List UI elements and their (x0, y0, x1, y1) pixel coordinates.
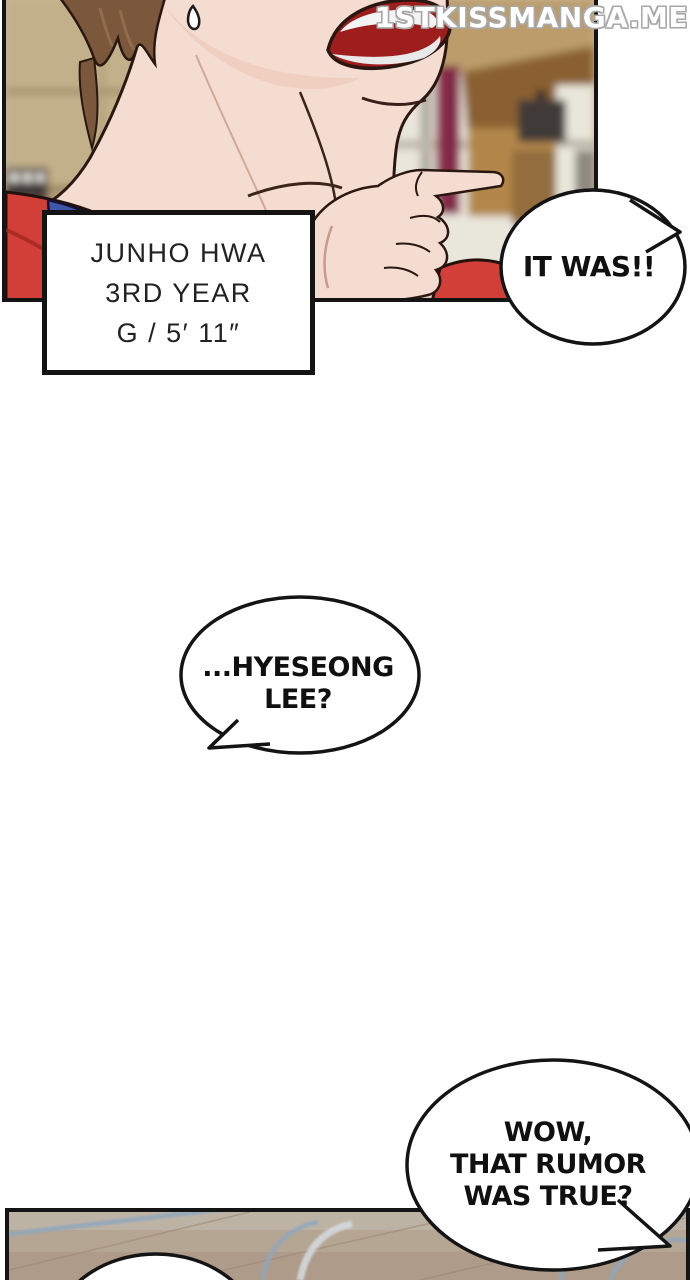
bubble-text-hyeseong-2: LEE? (264, 684, 332, 715)
bubble-text-rumor-3: WAS TRUE? (463, 1181, 632, 1212)
speech-bubble-hyeseong: ...HYESEONG LEE? (181, 597, 419, 753)
bubble-text-rumor-2: THAT RUMOR (450, 1149, 647, 1180)
manga-page: 1STKISSMANGA.ME JUNHO HWA 3RD YEAR G / 5… (0, 0, 690, 1280)
partial-speech-bubble (54, 1254, 258, 1280)
bubble-text-it-was: IT WAS!! (523, 250, 655, 283)
speech-bubble-rumor: WOW, THAT RUMOR WAS TRUE? (407, 1060, 690, 1270)
bubble-text-hyeseong-1: ...HYESEONG (202, 652, 393, 683)
bubble-text-rumor-1: WOW, (504, 1117, 593, 1148)
speech-bubble-layer: IT WAS!! ...HYESEONG LEE? WOW, THAT RUMO… (0, 0, 690, 1280)
speech-bubble-it-was: IT WAS!! (501, 190, 685, 344)
